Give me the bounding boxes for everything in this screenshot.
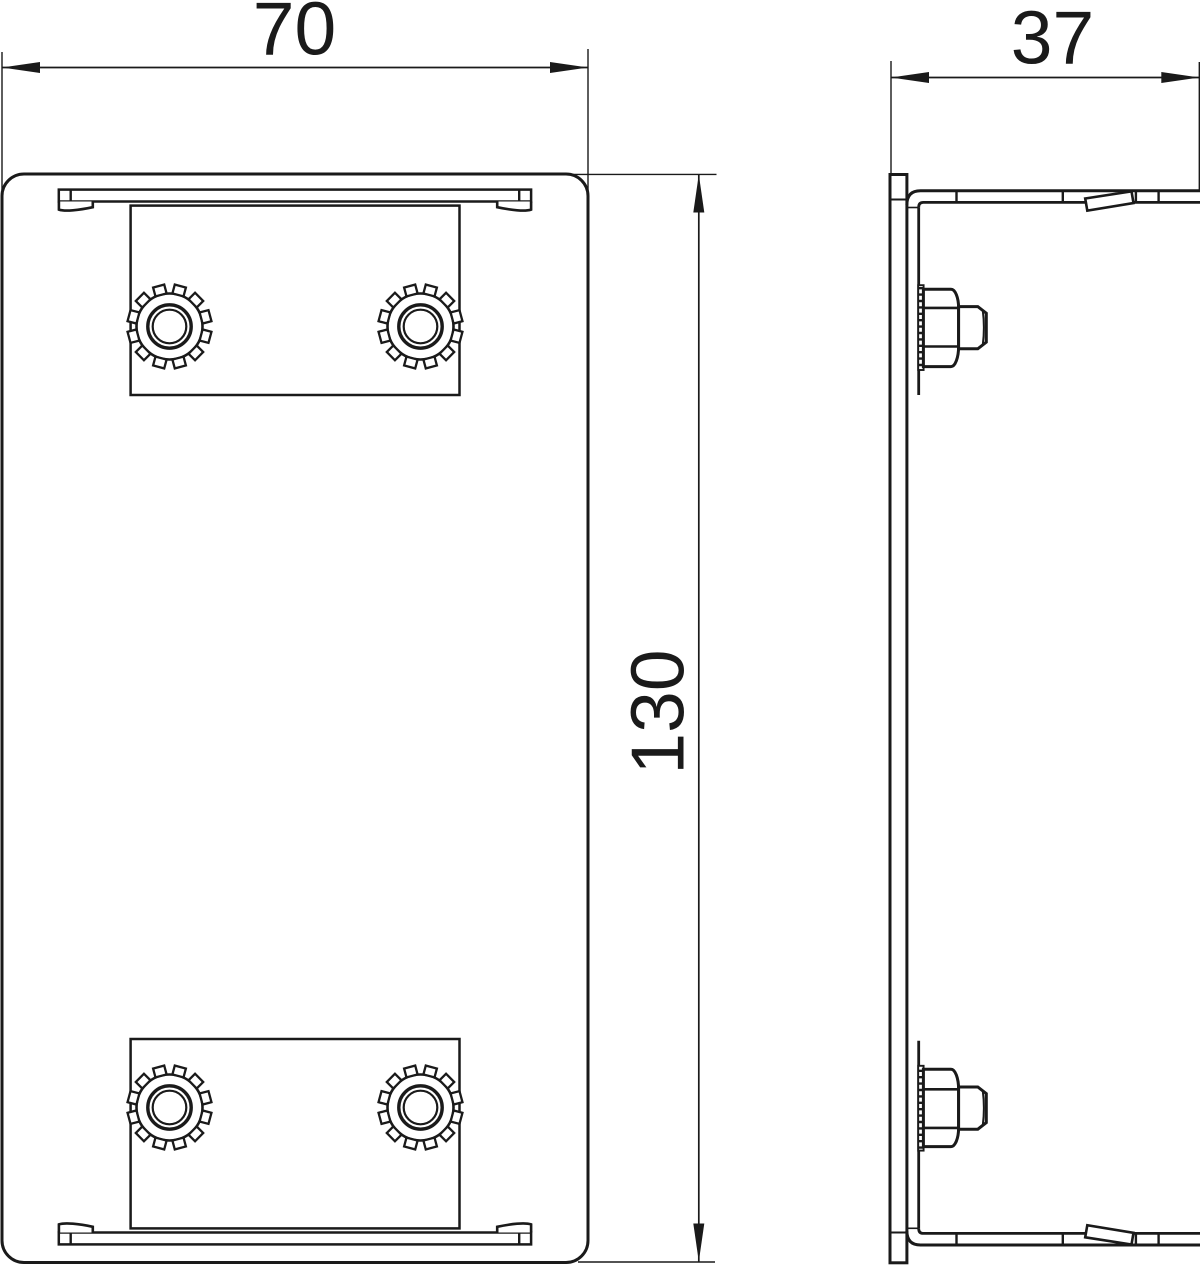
svg-text:130: 130 (616, 649, 700, 774)
svg-text:37: 37 (1011, 0, 1094, 80)
svg-text:70: 70 (253, 0, 336, 71)
